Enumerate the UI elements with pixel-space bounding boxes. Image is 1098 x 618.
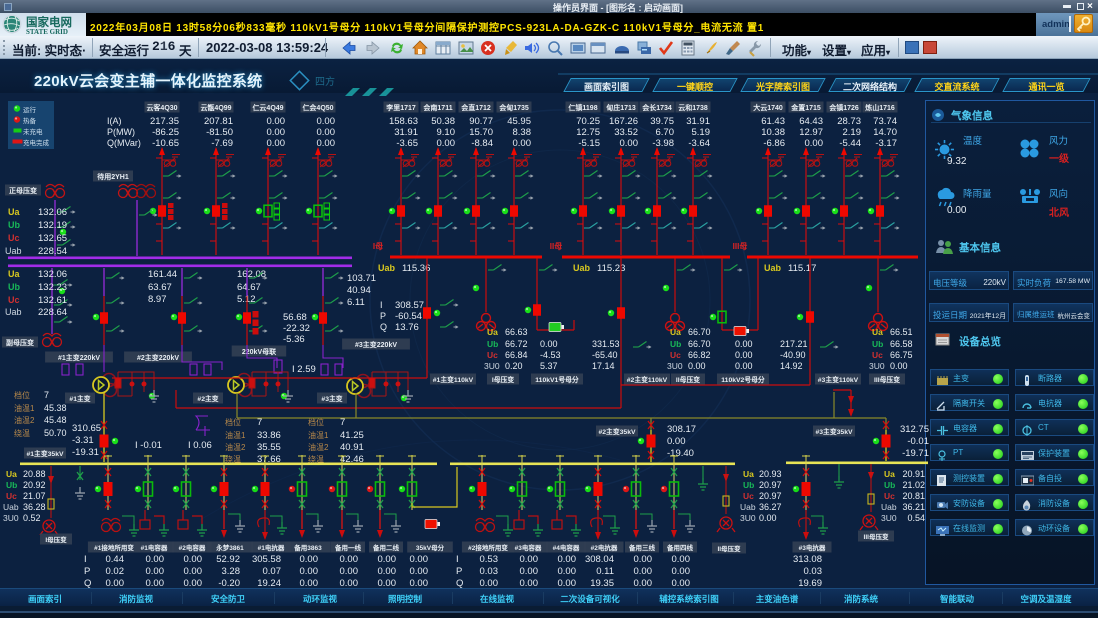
svg-text:I(A): I(A) [107, 116, 122, 126]
svg-text:#1接地所用变: #1接地所用变 [94, 543, 134, 552]
svg-text:I 0.06: I 0.06 [188, 440, 212, 451]
svg-text:Ub: Ub [670, 339, 681, 349]
svg-text:Ub: Ub [884, 480, 895, 490]
svg-text:0.00: 0.00 [735, 350, 753, 360]
svg-text:#2电容器: #2电容器 [179, 543, 206, 552]
svg-text:2.19: 2.19 [843, 127, 862, 138]
svg-text:云甑4Q99: 云甑4Q99 [200, 103, 231, 112]
svg-text:3U0: 3U0 [667, 361, 683, 371]
svg-text:36.21: 36.21 [902, 502, 925, 512]
svg-text:66.75: 66.75 [890, 350, 913, 360]
svg-text:66.51: 66.51 [890, 327, 913, 337]
svg-text:207.81: 207.81 [204, 116, 233, 127]
svg-text:5.19: 5.19 [692, 127, 711, 138]
svg-text:36.28: 36.28 [23, 502, 46, 512]
svg-text:Ub: Ub [8, 282, 20, 292]
svg-text:#3电容器: #3电容器 [515, 543, 542, 552]
svg-text:45.48: 45.48 [44, 415, 67, 425]
svg-text:Ub: Ub [6, 480, 17, 490]
svg-text:0.00: 0.00 [184, 578, 203, 589]
svg-text:35.55: 35.55 [257, 442, 281, 453]
svg-text:Uc: Uc [884, 491, 895, 501]
svg-text:II母压变: II母压变 [717, 544, 741, 553]
svg-text:I -0.01: I -0.01 [135, 440, 162, 451]
svg-text:308.57: 308.57 [395, 300, 424, 311]
svg-text:0.00: 0.00 [184, 554, 203, 565]
svg-text:0.00: 0.00 [558, 578, 577, 589]
svg-text:-22.32: -22.32 [283, 323, 310, 334]
svg-text:66.70: 66.70 [688, 339, 711, 349]
svg-text:331.53: 331.53 [592, 339, 620, 349]
svg-text:7: 7 [340, 417, 345, 428]
svg-text:0.53: 0.53 [480, 554, 499, 565]
svg-text:-3.65: -3.65 [396, 138, 418, 149]
svg-text:0.02: 0.02 [106, 566, 125, 577]
svg-text:-19.71: -19.71 [902, 448, 929, 459]
svg-text:-3.17: -3.17 [875, 138, 897, 149]
svg-text:305.58: 305.58 [252, 554, 281, 565]
svg-text:0.00: 0.00 [340, 566, 359, 577]
svg-text:油温2: 油温2 [308, 442, 329, 452]
svg-text:132.61: 132.61 [38, 295, 67, 306]
svg-text:14.92: 14.92 [780, 361, 803, 371]
svg-text:备用一线: 备用一线 [334, 543, 362, 552]
svg-text:甸庄1713: 甸庄1713 [605, 103, 636, 112]
svg-text:II母: II母 [550, 242, 562, 251]
svg-text:Ub: Ub [8, 220, 20, 230]
svg-text:33.52: 33.52 [614, 127, 638, 138]
svg-text:Uab: Uab [378, 263, 396, 273]
svg-text:21.07: 21.07 [23, 491, 46, 501]
svg-text:#3主变220kV: #3主变220kV [355, 340, 397, 349]
svg-text:#1主变: #1主变 [69, 394, 90, 403]
svg-text:308.17: 308.17 [667, 424, 696, 435]
svg-text:158.63: 158.63 [389, 116, 418, 127]
svg-text:115.36: 115.36 [402, 263, 430, 274]
svg-text:31.91: 31.91 [394, 127, 418, 138]
svg-text:-8.84: -8.84 [471, 138, 493, 149]
svg-text:-40.90: -40.90 [780, 350, 806, 360]
svg-text:20.93: 20.93 [759, 469, 782, 479]
svg-text:310.65: 310.65 [72, 423, 101, 434]
svg-text:0.00: 0.00 [520, 578, 539, 589]
svg-text:Uab: Uab [740, 502, 756, 512]
svg-text:会镇1726: 会镇1726 [829, 103, 859, 112]
svg-text:Ub: Ub [743, 480, 754, 490]
svg-text:0.00: 0.00 [146, 566, 165, 577]
svg-text:312.75: 312.75 [900, 424, 929, 435]
svg-text:-81.50: -81.50 [206, 127, 233, 138]
svg-text:0.00: 0.00 [317, 116, 336, 127]
svg-text:Uc: Uc [872, 350, 883, 360]
svg-text:热备: 热备 [23, 116, 37, 125]
svg-text:35kV母分: 35kV母分 [416, 543, 445, 552]
svg-text:20.97: 20.97 [759, 491, 782, 501]
svg-text:0.00: 0.00 [300, 554, 319, 565]
svg-text:20.88: 20.88 [23, 469, 46, 479]
svg-text:31.91: 31.91 [686, 116, 710, 127]
svg-text:#2电抗器: #2电抗器 [591, 543, 618, 552]
svg-text:P(MW): P(MW) [107, 127, 135, 137]
svg-text:0.00: 0.00 [300, 578, 319, 589]
svg-text:0.03: 0.03 [804, 566, 823, 577]
svg-text:0.00: 0.00 [378, 554, 397, 565]
svg-text:-65.40: -65.40 [592, 350, 618, 360]
svg-text:40.91: 40.91 [340, 442, 364, 453]
svg-text:备用3863: 备用3863 [293, 543, 322, 552]
svg-text:7: 7 [44, 390, 49, 400]
svg-text:0.00: 0.00 [437, 138, 456, 149]
svg-text:II母压变: II母压变 [676, 375, 700, 384]
svg-text:油温1: 油温1 [14, 403, 35, 413]
svg-text:0.00: 0.00 [317, 138, 336, 149]
svg-text:III母: III母 [733, 242, 748, 251]
svg-text:0.00: 0.00 [688, 361, 706, 371]
svg-text:0.00: 0.00 [735, 339, 753, 349]
svg-text:0.00: 0.00 [558, 554, 577, 565]
svg-text:#2主变110kV: #2主变110kV [627, 375, 668, 384]
svg-text:33.86: 33.86 [257, 430, 281, 441]
svg-text:会甸1735: 会甸1735 [499, 103, 529, 112]
svg-text:0.44: 0.44 [106, 554, 125, 565]
svg-text:-86.25: -86.25 [152, 127, 179, 138]
svg-text:档位: 档位 [308, 417, 324, 427]
svg-text:#2主变220kV: #2主变220kV [137, 353, 179, 362]
svg-text:0.52: 0.52 [23, 513, 41, 523]
svg-text:I母压变: I母压变 [45, 535, 67, 544]
svg-text:金置1715: 金置1715 [790, 103, 821, 112]
svg-text:-0.20: -0.20 [218, 578, 240, 589]
svg-text:0.00: 0.00 [184, 566, 203, 577]
svg-text:-5.36: -5.36 [283, 334, 305, 345]
svg-text:0.00: 0.00 [317, 127, 336, 138]
svg-text:0.00: 0.00 [106, 578, 125, 589]
svg-text:6.11: 6.11 [347, 297, 365, 308]
svg-text:20.81: 20.81 [902, 491, 925, 501]
svg-text:0.00: 0.00 [890, 361, 908, 371]
svg-text:Uab: Uab [573, 263, 591, 273]
svg-text:50.38: 50.38 [431, 116, 455, 127]
svg-text:19.69: 19.69 [798, 578, 822, 589]
svg-text:73.74: 73.74 [873, 116, 897, 127]
svg-text:45.38: 45.38 [44, 403, 67, 413]
svg-text:217.35: 217.35 [150, 116, 179, 127]
svg-text:15.70: 15.70 [469, 127, 493, 138]
svg-text:未充电: 未充电 [23, 127, 43, 136]
svg-text:66.63: 66.63 [505, 327, 528, 337]
svg-text:Ua: Ua [884, 469, 895, 479]
svg-text:12.75: 12.75 [576, 127, 600, 138]
svg-text:0.00: 0.00 [410, 554, 429, 565]
svg-text:41.25: 41.25 [340, 430, 364, 441]
svg-text:-3.31: -3.31 [72, 435, 94, 446]
svg-text:10.38: 10.38 [761, 127, 785, 138]
svg-text:#1主变110kV: #1主变110kV [433, 375, 474, 384]
svg-text:-5.44: -5.44 [839, 138, 861, 149]
svg-text:0.00: 0.00 [520, 566, 539, 577]
svg-text:50.70: 50.70 [44, 428, 67, 438]
svg-text:56.68: 56.68 [283, 312, 307, 323]
svg-text:132.23: 132.23 [38, 282, 67, 293]
svg-text:Ub: Ub [487, 339, 498, 349]
svg-text:I: I [84, 554, 87, 565]
svg-text:Uc: Uc [8, 295, 20, 305]
svg-text:115.17: 115.17 [788, 263, 816, 274]
svg-text:Uab: Uab [5, 307, 22, 317]
svg-text:14.70: 14.70 [873, 127, 897, 138]
svg-text:0.00: 0.00 [735, 361, 753, 371]
svg-text:228.54: 228.54 [38, 246, 67, 257]
svg-text:云和1738: 云和1738 [678, 103, 708, 112]
svg-text:0.00: 0.00 [378, 578, 397, 589]
svg-text:副母压变: 副母压变 [6, 338, 34, 347]
svg-text:Q: Q [380, 322, 387, 332]
svg-text:3U0: 3U0 [881, 513, 897, 523]
svg-text:313.08: 313.08 [793, 554, 822, 565]
svg-text:油温2: 油温2 [14, 415, 35, 425]
svg-text:20.91: 20.91 [902, 469, 925, 479]
svg-text:0.00: 0.00 [300, 566, 319, 577]
svg-text:Ua: Ua [8, 207, 20, 217]
svg-text:66.70: 66.70 [688, 327, 711, 337]
svg-text:61.43: 61.43 [761, 116, 785, 127]
svg-text:0.20: 0.20 [505, 361, 523, 371]
svg-text:Uc: Uc [487, 350, 498, 360]
svg-text:仁会4Q50: 仁会4Q50 [302, 103, 333, 112]
svg-text:#2主变35kV: #2主变35kV [598, 427, 635, 436]
svg-text:Uc: Uc [670, 350, 681, 360]
svg-text:132.06: 132.06 [38, 207, 67, 218]
svg-text:III母压变: III母压变 [864, 532, 889, 541]
svg-text:0.00: 0.00 [146, 554, 165, 565]
svg-text:66.82: 66.82 [688, 350, 711, 360]
svg-text:0.00: 0.00 [672, 566, 691, 577]
svg-text:167.26: 167.26 [609, 116, 638, 127]
svg-text:0.07: 0.07 [263, 566, 282, 577]
svg-text:#1主变220kV: #1主变220kV [58, 353, 100, 362]
svg-text:40.94: 40.94 [347, 285, 371, 296]
svg-text:64.43: 64.43 [799, 116, 823, 127]
svg-text:-60.54: -60.54 [395, 311, 422, 322]
svg-text:3.28: 3.28 [222, 566, 241, 577]
svg-text:20.97: 20.97 [759, 480, 782, 490]
svg-text:#2接地所用变: #2接地所用变 [468, 543, 508, 552]
svg-text:档位: 档位 [225, 417, 241, 427]
svg-text:66.84: 66.84 [505, 350, 528, 360]
svg-text:110kV1号母分: 110kV1号母分 [535, 375, 579, 384]
svg-text:I母: I母 [373, 242, 383, 251]
svg-text:0.00: 0.00 [672, 554, 691, 565]
svg-text:#3主变: #3主变 [321, 394, 342, 403]
svg-text:仁云4Q49: 仁云4Q49 [252, 103, 283, 112]
svg-text:3U0: 3U0 [3, 513, 19, 523]
svg-text:Uab: Uab [764, 263, 782, 273]
svg-text:Ub: Ub [872, 339, 883, 349]
svg-text:13.76: 13.76 [395, 322, 419, 333]
svg-text:永梦3861: 永梦3861 [215, 543, 244, 552]
svg-text:7: 7 [257, 417, 262, 428]
svg-text:Ua: Ua [743, 469, 754, 479]
svg-text:0.00: 0.00 [267, 138, 286, 149]
svg-text:#3电抗器: #3电抗器 [799, 543, 826, 552]
svg-text:-19.40: -19.40 [667, 448, 694, 459]
svg-text:Q: Q [456, 578, 463, 589]
svg-text:档位: 档位 [14, 390, 30, 400]
svg-text:充电完成: 充电完成 [23, 138, 50, 147]
svg-text:-0.01: -0.01 [907, 436, 929, 447]
svg-text:17.14: 17.14 [592, 361, 615, 371]
svg-text:-7.69: -7.69 [211, 138, 233, 149]
svg-text:#1主变35kV: #1主变35kV [26, 449, 63, 458]
svg-text:36.27: 36.27 [759, 502, 782, 512]
svg-text:8.97: 8.97 [148, 294, 167, 305]
svg-text:Q: Q [84, 578, 91, 589]
svg-text:I母压变: I母压变 [492, 375, 514, 384]
svg-text:0.00: 0.00 [558, 566, 577, 577]
svg-text:0.00: 0.00 [410, 566, 429, 577]
svg-text:油温2: 油温2 [225, 442, 246, 452]
svg-text:3U0: 3U0 [869, 361, 885, 371]
svg-text:0.00: 0.00 [513, 138, 532, 149]
svg-text:正母压变: 正母压变 [9, 186, 37, 195]
svg-text:#2主变: #2主变 [197, 394, 218, 403]
svg-text:0.00: 0.00 [540, 339, 558, 349]
svg-text:Uab: Uab [5, 246, 22, 256]
svg-text:Uc: Uc [6, 491, 17, 501]
svg-text:66.58: 66.58 [890, 339, 913, 349]
svg-text:0.00: 0.00 [378, 566, 397, 577]
svg-text:0.00: 0.00 [620, 138, 639, 149]
svg-text:3U0: 3U0 [740, 513, 756, 523]
svg-text:#3主变35kV: #3主变35kV [815, 427, 852, 436]
svg-text:0.00: 0.00 [146, 578, 165, 589]
svg-text:I 2.59: I 2.59 [292, 364, 316, 375]
svg-text:0.00: 0.00 [410, 578, 429, 589]
svg-text:0.11: 0.11 [596, 566, 614, 577]
svg-text:0.00: 0.00 [759, 513, 777, 523]
svg-text:63.67: 63.67 [148, 282, 172, 293]
svg-text:Ua: Ua [872, 327, 883, 337]
svg-text:45.95: 45.95 [507, 116, 531, 127]
svg-text:会南1711: 会南1711 [423, 103, 452, 112]
svg-text:云客4Q30: 云客4Q30 [146, 103, 177, 112]
svg-text:0.00: 0.00 [267, 116, 286, 127]
svg-text:Uc: Uc [8, 233, 20, 243]
svg-text:132.19: 132.19 [38, 220, 67, 231]
svg-text:161.44: 161.44 [148, 269, 177, 280]
svg-text:会长1734: 会长1734 [642, 103, 672, 112]
svg-text:Ua: Ua [8, 269, 20, 279]
svg-text:217.21: 217.21 [780, 339, 808, 349]
svg-text:70.25: 70.25 [576, 116, 600, 127]
svg-text:66.72: 66.72 [505, 339, 528, 349]
svg-text:仁镇1198: 仁镇1198 [568, 103, 597, 112]
svg-text:0.00: 0.00 [267, 127, 286, 138]
svg-text:Uc: Uc [743, 491, 754, 501]
svg-text:-5.15: -5.15 [578, 138, 600, 149]
svg-text:Q(MVar): Q(MVar) [107, 138, 141, 148]
svg-text:会直1712: 会直1712 [461, 103, 491, 112]
svg-text:0.00: 0.00 [480, 578, 499, 589]
svg-text:39.75: 39.75 [650, 116, 674, 127]
svg-text:132.65: 132.65 [38, 233, 67, 244]
svg-text:228.64: 228.64 [38, 307, 67, 318]
svg-text:Uab: Uab [3, 502, 19, 512]
svg-text:Ua: Ua [6, 469, 17, 479]
svg-text:6.70: 6.70 [656, 127, 675, 138]
svg-text:-10.65: -10.65 [152, 138, 179, 149]
svg-text:I: I [380, 300, 383, 310]
svg-text:8.38: 8.38 [513, 127, 532, 138]
svg-text:-4.53: -4.53 [540, 350, 561, 360]
svg-text:Ua: Ua [487, 327, 498, 337]
svg-text:李里1717: 李里1717 [385, 103, 416, 112]
svg-text:备用二线: 备用二线 [372, 543, 400, 552]
svg-text:-3.98: -3.98 [652, 138, 674, 149]
svg-text:90.77: 90.77 [469, 116, 493, 127]
svg-text:0.03: 0.03 [480, 566, 499, 577]
svg-text:19.24: 19.24 [257, 578, 281, 589]
svg-text:20.92: 20.92 [23, 480, 46, 490]
svg-text:Uab: Uab [881, 502, 897, 512]
svg-text:52.92: 52.92 [216, 554, 240, 565]
svg-text:0.00: 0.00 [667, 436, 686, 447]
svg-text:0.00: 0.00 [634, 566, 653, 577]
svg-text:大云1740: 大云1740 [753, 103, 783, 112]
svg-text:-19.31: -19.31 [72, 447, 99, 458]
svg-text:I: I [456, 554, 459, 565]
svg-text:64.67: 64.67 [237, 282, 261, 293]
svg-text:#1电抗器: #1电抗器 [258, 543, 285, 552]
svg-text:0.00: 0.00 [520, 554, 539, 565]
svg-text:油温1: 油温1 [225, 430, 246, 440]
svg-text:P: P [380, 311, 386, 321]
svg-text:0.00: 0.00 [340, 554, 359, 565]
svg-text:III母压变: III母压变 [874, 375, 900, 384]
svg-text:#1电容器: #1电容器 [141, 543, 168, 552]
svg-text:308.04: 308.04 [585, 554, 614, 565]
svg-text:5.37: 5.37 [540, 361, 558, 371]
svg-text:炼山1716: 炼山1716 [865, 103, 895, 112]
svg-text:#4电容器: #4电容器 [553, 543, 580, 552]
svg-text:3U0: 3U0 [484, 361, 500, 371]
svg-text:P: P [456, 566, 462, 577]
svg-text:备用四线: 备用四线 [666, 543, 694, 552]
svg-text:28.73: 28.73 [837, 116, 861, 127]
svg-text:-6.86: -6.86 [763, 138, 785, 149]
svg-text:110kV2号母分: 110kV2号母分 [721, 375, 765, 384]
svg-text:9.10: 9.10 [437, 127, 456, 138]
svg-text:运行: 运行 [23, 105, 37, 114]
svg-text:0.00: 0.00 [672, 578, 691, 589]
svg-text:P: P [84, 566, 90, 577]
svg-text:0.00: 0.00 [634, 578, 653, 589]
svg-text:0.00: 0.00 [634, 554, 653, 565]
svg-text:油温1: 油温1 [308, 430, 329, 440]
svg-text:Ua: Ua [670, 327, 681, 337]
svg-text:19.35: 19.35 [590, 578, 614, 589]
svg-text:-3.64: -3.64 [688, 138, 710, 149]
svg-text:12.97: 12.97 [799, 127, 823, 138]
svg-text:0.00: 0.00 [805, 138, 824, 149]
svg-text:#3主变110kV: #3主变110kV [818, 375, 859, 384]
svg-text:待用2YH1: 待用2YH1 [97, 172, 129, 181]
svg-text:0.00: 0.00 [340, 578, 359, 589]
svg-text:备用三线: 备用三线 [628, 543, 656, 552]
svg-text:绕温: 绕温 [14, 428, 30, 438]
svg-text:132.06: 132.06 [38, 269, 67, 280]
svg-text:0.54: 0.54 [907, 513, 925, 523]
